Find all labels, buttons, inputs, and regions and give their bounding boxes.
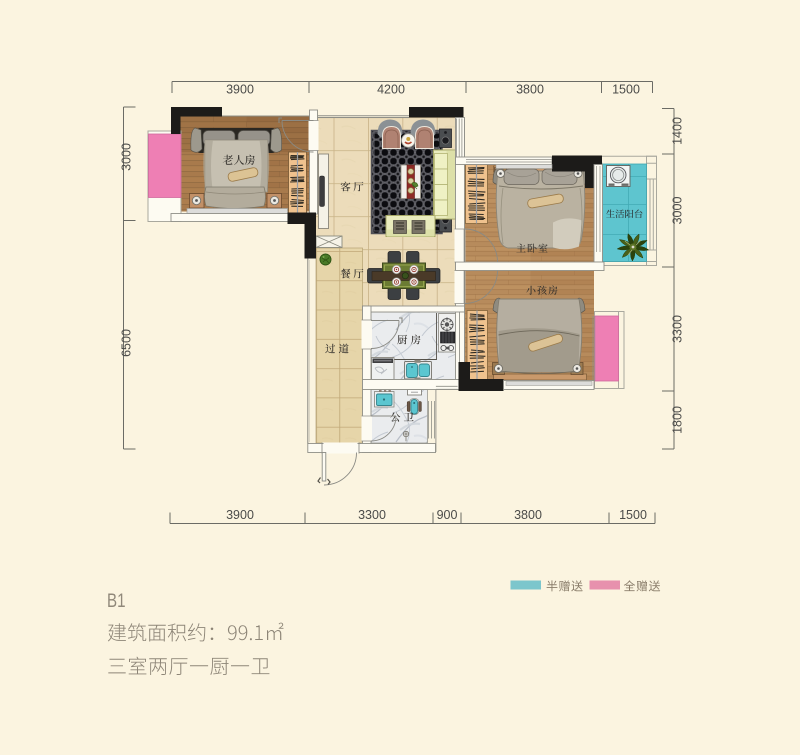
svg-text:3300: 3300 bbox=[671, 315, 685, 343]
svg-text:3000: 3000 bbox=[671, 197, 685, 225]
svg-text:1400: 1400 bbox=[671, 117, 685, 145]
svg-text:3900: 3900 bbox=[226, 508, 254, 522]
svg-text:3900: 3900 bbox=[226, 83, 254, 97]
svg-text:4200: 4200 bbox=[377, 83, 405, 97]
svg-text:1500: 1500 bbox=[619, 508, 647, 522]
svg-text:3800: 3800 bbox=[516, 83, 544, 97]
svg-text:B1: B1 bbox=[107, 590, 126, 612]
svg-text:1800: 1800 bbox=[671, 406, 685, 434]
svg-text:3000: 3000 bbox=[120, 143, 134, 171]
svg-text:6500: 6500 bbox=[120, 329, 134, 357]
svg-text:1500: 1500 bbox=[612, 83, 640, 97]
svg-text:3800: 3800 bbox=[514, 508, 542, 522]
svg-text:3300: 3300 bbox=[358, 508, 386, 522]
svg-text:900: 900 bbox=[437, 508, 458, 522]
